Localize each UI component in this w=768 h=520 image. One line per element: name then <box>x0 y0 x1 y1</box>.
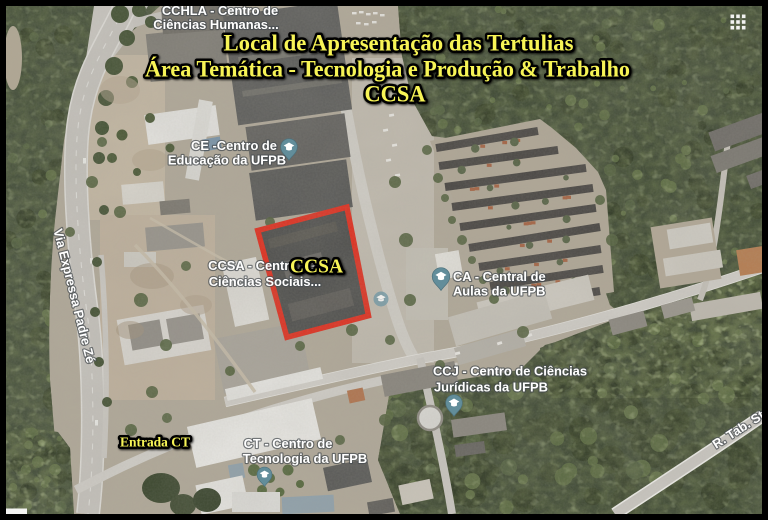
svg-text:CA - Central de: CA - Central de <box>453 269 546 284</box>
svg-text:CT - Centro de: CT - Centro de <box>244 436 333 451</box>
svg-text:CE -Centro de: CE -Centro de <box>191 138 277 153</box>
svg-text:CCJ - Centro de Ciências: CCJ - Centro de Ciências <box>433 364 587 379</box>
svg-text:Educação da UFPB: Educação da UFPB <box>168 153 286 168</box>
svg-text:Entrada CT: Entrada CT <box>120 435 190 450</box>
svg-text:CCSA: CCSA <box>290 257 343 278</box>
svg-text:Aulas da UFPB: Aulas da UFPB <box>453 284 545 299</box>
svg-text:CCSA: CCSA <box>365 82 426 108</box>
svg-text:Jurídicas da UFPB: Jurídicas da UFPB <box>434 380 548 395</box>
svg-text:Área Temática - Tecnologia e: Área Temática - Tecnologia e Produção & … <box>145 57 630 83</box>
svg-text:Tecnologia da UFPB: Tecnologia da UFPB <box>243 451 367 466</box>
svg-text:Local de Apresentação das Tert: Local de Apresentação das Tertulias <box>224 31 574 57</box>
